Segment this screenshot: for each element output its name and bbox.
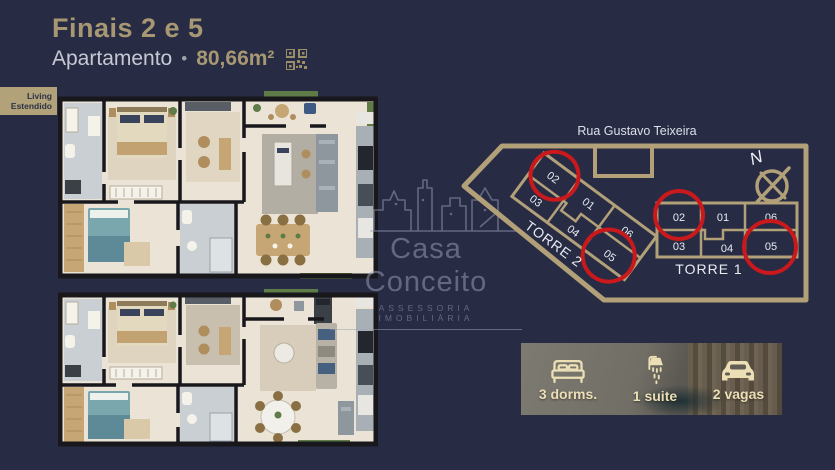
page-title: Finais 2 e 5 (52, 13, 307, 44)
tower1-unit-05: 05 (765, 241, 777, 253)
tower-2-block: 02 01 06 03 04 05 TORRE 2 (498, 142, 664, 296)
area-value: 80,66m² (196, 47, 274, 71)
tower2-unit-01: 01 (580, 196, 597, 213)
feature-vagas-label: 2 vagas (713, 386, 764, 402)
tower1-label: TORRE 1 (675, 261, 742, 277)
site-entrance-outline (595, 146, 652, 176)
feature-vagas: 2 vagas (713, 357, 764, 402)
subtitle-text: Apartamento (52, 47, 172, 71)
site-boundary (464, 146, 806, 300)
qr-code-icon (286, 49, 307, 70)
tower1-unit-03: 03 (673, 241, 685, 253)
header: Finais 2 e 5 Apartamento • 80,66m² (52, 13, 307, 71)
features-panel: 3 dorms. 1 suite 2 vagas (521, 343, 782, 415)
north-label: N (747, 147, 766, 169)
tower1-unit-04: 04 (721, 243, 733, 255)
site-plan: Rua Gustavo Teixeira 02 01 06 03 04 05 T… (450, 112, 830, 337)
feature-dorms-label: 3 dorms. (539, 386, 597, 402)
tower1-unit-02: 02 (673, 212, 685, 224)
feature-suite-label: 1 suite (633, 388, 677, 404)
living-estendido-badge: Living Estendido (0, 87, 57, 115)
tower2-unit-05: 05 (601, 248, 618, 265)
shower-icon (644, 354, 666, 386)
page-subtitle: Apartamento • 80,66m² (52, 47, 307, 71)
subtitle-separator: • (181, 49, 187, 69)
page-background: Finais 2 e 5 Apartamento • 80,66m² (0, 0, 835, 470)
tower-1-block: 02 01 06 03 04 05 TORRE 1 (655, 191, 797, 277)
feature-dorms: 3 dorms. (539, 357, 597, 402)
street-label: Rua Gustavo Teixeira (577, 124, 696, 138)
tower2-unit-02: 02 (544, 170, 561, 187)
feature-suite: 1 suite (633, 354, 677, 404)
tower1-unit-01: 01 (717, 212, 729, 224)
compass-icon: N (747, 147, 789, 202)
bed-icon (549, 357, 587, 384)
car-icon (718, 357, 758, 384)
